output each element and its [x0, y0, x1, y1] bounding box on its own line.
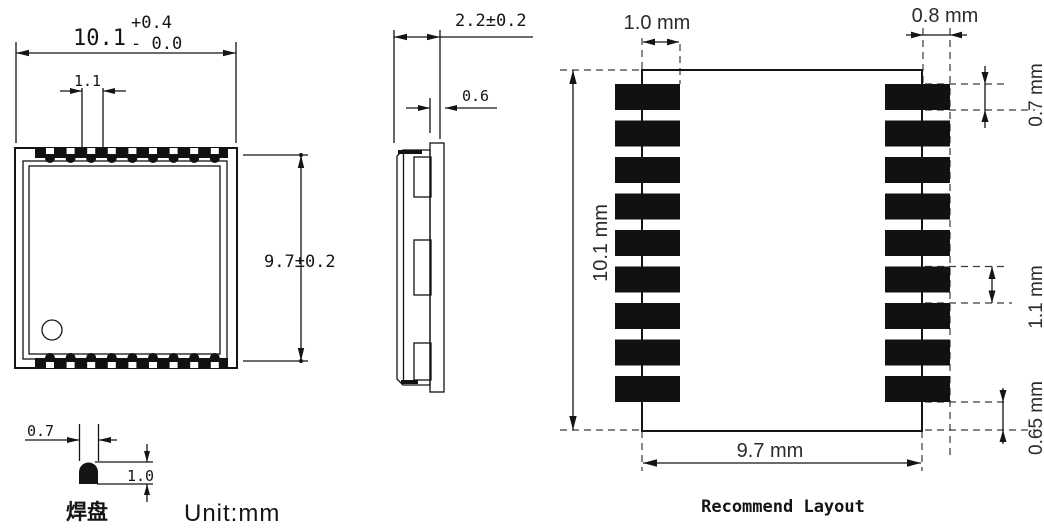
background [0, 0, 1044, 531]
layout-pad-right [885, 267, 950, 293]
layout-pad-right [885, 121, 950, 147]
dim-layout-pad-inner-value: 1.0 mm [624, 12, 691, 34]
layout-pad-left [615, 303, 680, 329]
layout-pad-right [885, 303, 950, 329]
dim-pad-height-value: 1.0 [127, 467, 154, 485]
dim-top-width-tol-plus: +0.4 [131, 13, 172, 33]
dim-side-pcb-value: 0.6 [462, 87, 489, 105]
castellation-notch [170, 362, 178, 368]
dim-pad-width-value: 0.7 [27, 422, 54, 440]
layout-pad-right [885, 230, 950, 256]
side-pad-mark-bottom [401, 380, 418, 384]
unit-note: Unit:mm [184, 500, 280, 527]
layout-pad-right [885, 194, 950, 220]
package-dimensions-drawing: 10.1 +0.4 - 0.0 1.1 9.7±0.2 [0, 0, 1044, 531]
layout-pad-left [615, 121, 680, 147]
dim-top-height-value: 9.7±0.2 [264, 252, 336, 272]
castellation-notch [170, 148, 178, 154]
castellation-notch [149, 362, 157, 368]
castellation-notch [128, 362, 136, 368]
layout-pad-left [615, 340, 680, 366]
pad-label: 焊盘 [66, 500, 108, 524]
layout-pad-right [885, 340, 950, 366]
layout-pad-left [615, 84, 680, 110]
layout-pad-right [885, 157, 950, 183]
castellation-notch [67, 148, 75, 154]
layout-pad-left [615, 157, 680, 183]
layout-pad-left [615, 376, 680, 402]
dim-side-thickness-value: 2.2±0.2 [455, 11, 527, 31]
castellation-notch [211, 148, 219, 154]
castellation-notch [211, 362, 219, 368]
castellation-notch [128, 148, 136, 154]
layout-title: Recommend Layout [701, 497, 865, 517]
layout-pad-left [615, 194, 680, 220]
castellation-notch [190, 362, 198, 368]
castellation-notch [87, 148, 95, 154]
layout-pad-right [885, 84, 950, 110]
drawing-svg: 10.1 +0.4 - 0.0 1.1 9.7±0.2 [0, 0, 1044, 531]
dim-top-pitch-value: 1.1 [74, 72, 101, 90]
dim-layout-bottom-gap-value: 0.65 mm [1026, 381, 1044, 455]
castellation-notch [190, 148, 198, 154]
pad-shape [79, 463, 98, 485]
castellation-notch [46, 362, 54, 368]
dim-top-width-value: 10.1 [73, 26, 126, 51]
castellation-notch [87, 362, 95, 368]
dim-layout-body-width-value: 9.7 mm [737, 440, 804, 462]
layout-pad-right [885, 376, 950, 402]
castellation-notch [108, 148, 116, 154]
dim-layout-pad-outer-value: 0.8 mm [912, 5, 979, 27]
dim-layout-body-height-value: 10.1 mm [590, 204, 612, 282]
side-pad-mark-top [398, 150, 422, 154]
layout-pad-left [615, 230, 680, 256]
dim-layout-pad-height-value: 0.7 mm [1026, 63, 1044, 126]
dim-top-width-tol-minus: - 0.0 [131, 34, 182, 54]
castellation-notch [149, 148, 157, 154]
castellation-notch [108, 362, 116, 368]
dim-layout-pad-pitch-value: 1.1 mm [1026, 265, 1044, 328]
layout-pad-left [615, 267, 680, 293]
castellation-notch [67, 362, 75, 368]
castellation-notch [46, 148, 54, 154]
